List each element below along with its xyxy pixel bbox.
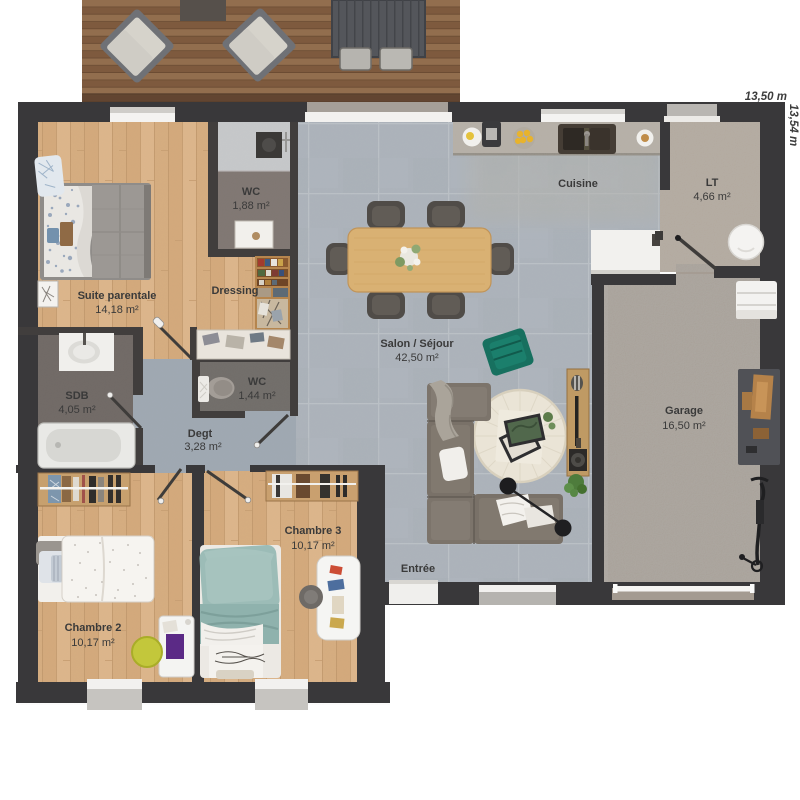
svg-text:1,88 m²: 1,88 m²	[232, 200, 270, 212]
svg-text:4,66 m²: 4,66 m²	[693, 191, 731, 203]
svg-text:Chambre 3: Chambre 3	[285, 525, 342, 537]
svg-text:4,05 m²: 4,05 m²	[58, 404, 96, 416]
svg-text:Cuisine: Cuisine	[558, 178, 598, 190]
svg-text:Chambre 2: Chambre 2	[65, 622, 122, 634]
svg-text:LT: LT	[706, 177, 719, 189]
svg-text:3,28 m²: 3,28 m²	[184, 441, 222, 453]
svg-text:WC: WC	[242, 186, 260, 198]
svg-text:10,17 m²: 10,17 m²	[71, 637, 115, 649]
svg-text:Suite parentale: Suite parentale	[78, 290, 157, 302]
svg-text:SDB: SDB	[65, 390, 88, 402]
svg-text:WC: WC	[248, 376, 266, 388]
svg-text:10,17 m²: 10,17 m²	[291, 540, 335, 552]
svg-text:Degt: Degt	[188, 428, 213, 440]
svg-text:13,50 m: 13,50 m	[745, 91, 787, 103]
svg-text:13,54 m: 13,54 m	[787, 104, 799, 146]
svg-text:1,44 m²: 1,44 m²	[238, 390, 276, 402]
svg-text:Salon / Séjour: Salon / Séjour	[380, 338, 454, 350]
svg-text:Entrée: Entrée	[401, 563, 435, 575]
svg-text:14,18 m²: 14,18 m²	[95, 304, 139, 316]
svg-text:Dressing: Dressing	[211, 285, 258, 297]
svg-text:Garage: Garage	[665, 405, 703, 417]
svg-text:42,50 m²: 42,50 m²	[395, 352, 439, 364]
svg-text:16,50 m²: 16,50 m²	[662, 420, 706, 432]
